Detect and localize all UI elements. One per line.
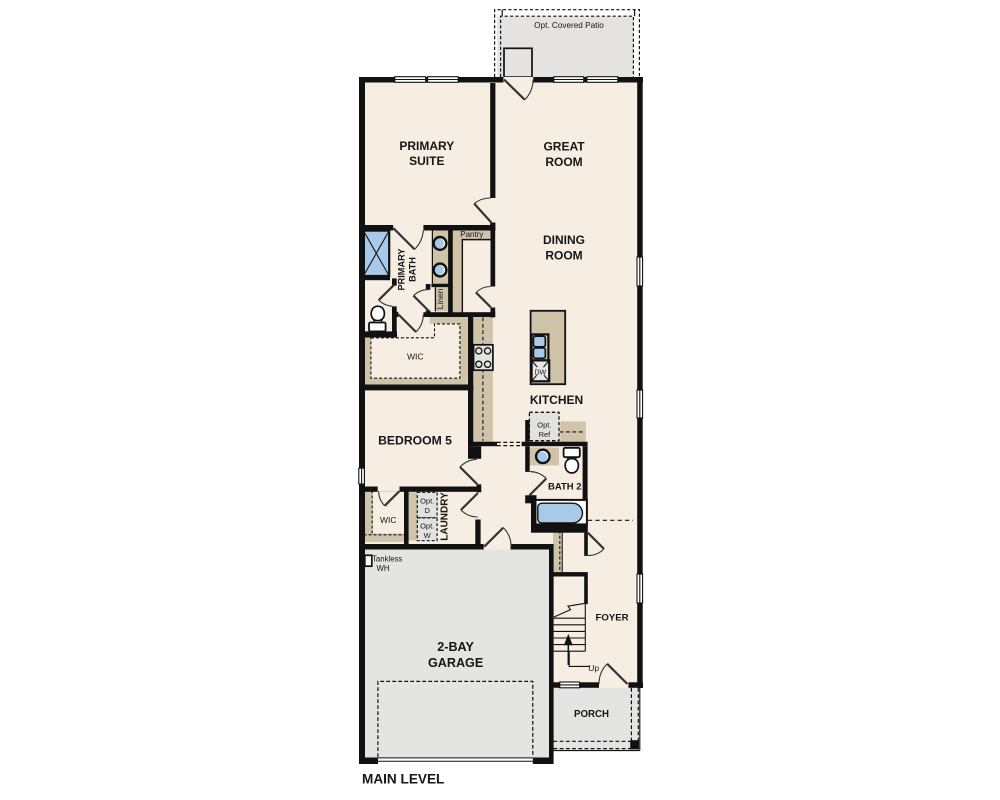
svg-text:Opt. Covered Patio: Opt. Covered Patio [534,21,604,30]
svg-text:WIC: WIC [407,352,424,362]
svg-text:PRIMARY: PRIMARY [397,248,407,290]
svg-text:WH: WH [377,564,390,573]
svg-text:BEDROOM 5: BEDROOM 5 [378,434,452,448]
svg-text:Tankless: Tankless [372,555,402,564]
svg-text:DINING: DINING [543,233,585,247]
svg-text:KITCHEN: KITCHEN [530,393,583,407]
svg-text:Ref: Ref [539,430,552,439]
svg-text:Pantry: Pantry [460,230,483,239]
svg-text:GARAGE: GARAGE [428,656,483,670]
svg-text:LAUNDRY: LAUNDRY [440,492,451,541]
svg-text:DW: DW [534,369,546,376]
svg-text:FOYER: FOYER [595,613,628,624]
svg-text:W: W [424,531,432,540]
svg-text:Up: Up [588,663,599,673]
svg-text:Linen: Linen [435,288,445,309]
svg-text:SUITE: SUITE [409,154,444,168]
svg-text:D: D [424,506,430,515]
svg-text:MAIN LEVEL: MAIN LEVEL [362,771,444,786]
svg-text:BATH: BATH [408,257,418,282]
svg-text:GREAT: GREAT [543,140,585,154]
svg-text:ROOM: ROOM [545,155,582,169]
svg-text:WIC: WIC [380,515,397,525]
svg-text:2-BAY: 2-BAY [437,640,474,654]
svg-text:Opt.: Opt. [420,522,434,531]
svg-text:PORCH: PORCH [574,709,609,720]
svg-text:Opt.: Opt. [537,421,551,430]
svg-text:Opt.: Opt. [420,497,434,506]
svg-text:PRIMARY: PRIMARY [399,139,454,153]
svg-text:ROOM: ROOM [545,249,582,263]
svg-text:BATH 2: BATH 2 [548,482,582,493]
